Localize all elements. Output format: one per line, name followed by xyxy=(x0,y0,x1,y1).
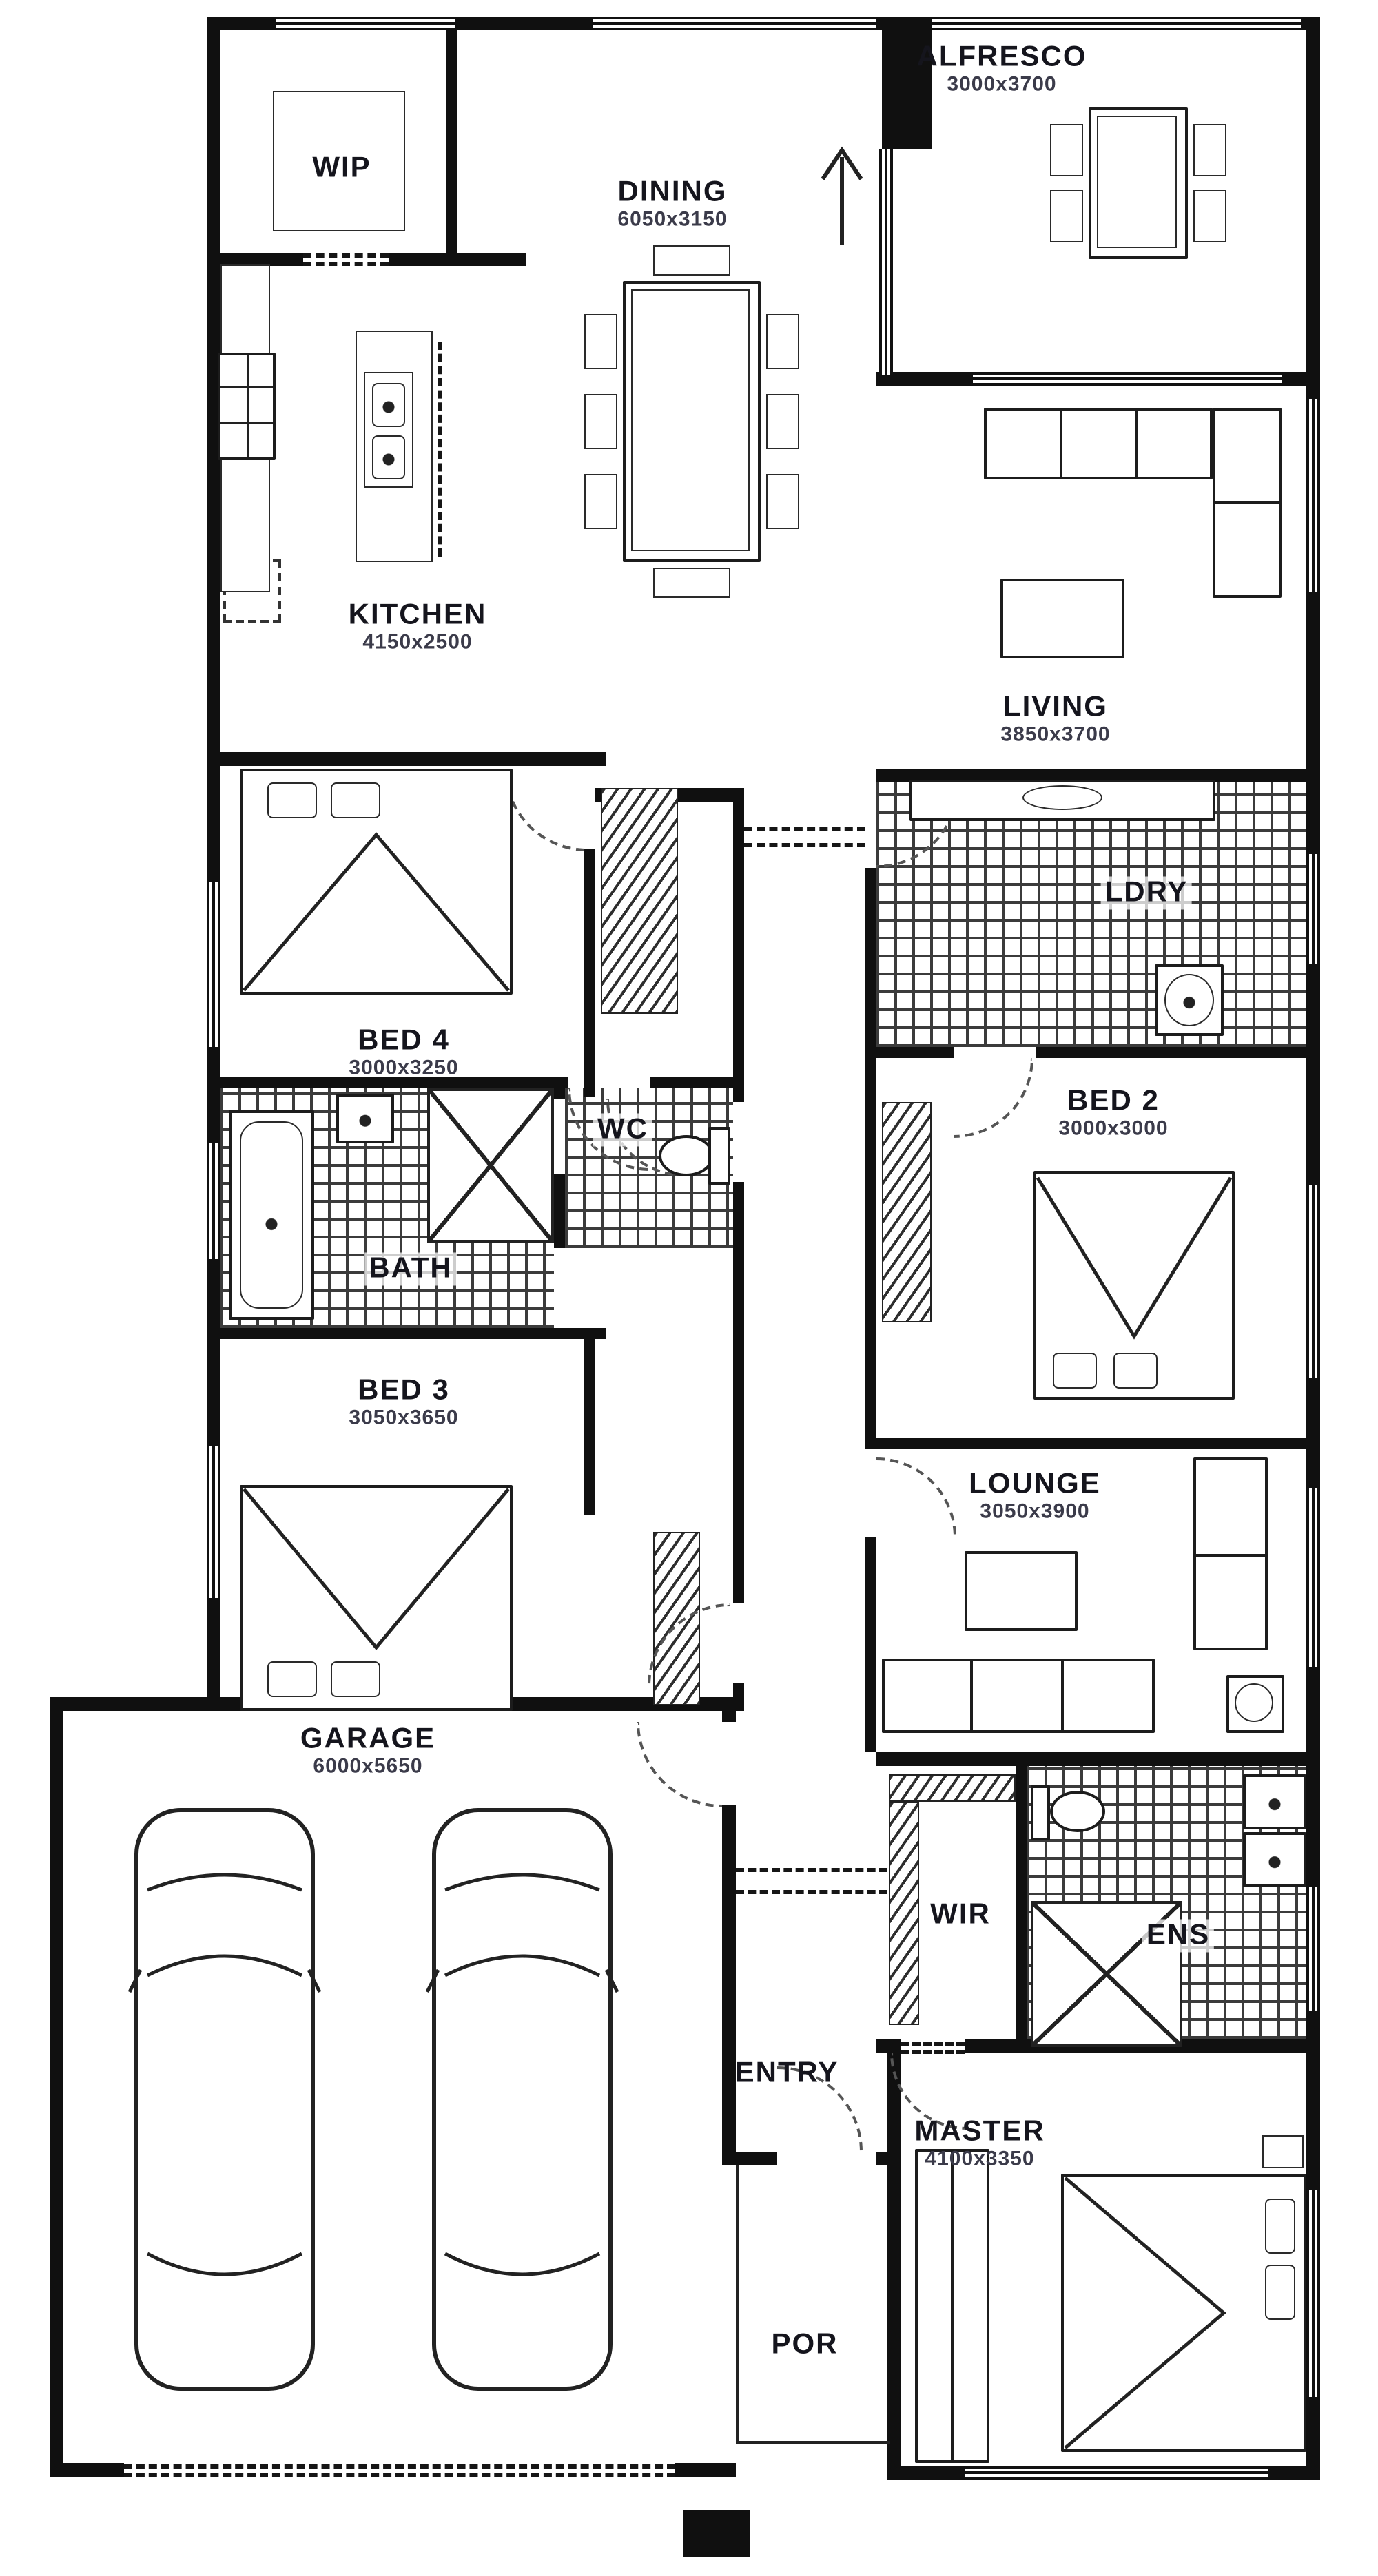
laundry-tub-bowl xyxy=(1164,974,1214,1026)
alfresco-table-inner xyxy=(1097,116,1177,248)
wc-toilet-bowl xyxy=(659,1135,714,1176)
wall-hall-right-c xyxy=(733,1683,744,1711)
living-sofa-top xyxy=(984,408,1213,479)
room-label-bed3: BED 3 3050x3650 xyxy=(349,1375,458,1431)
alfresco-chair-1 xyxy=(1050,124,1083,176)
window-lounge-right xyxy=(1306,1488,1320,1667)
bed3-pillow-2 xyxy=(331,1661,380,1697)
dining-chair-r3 xyxy=(766,474,799,529)
room-label-entry: ENTRY xyxy=(735,2057,839,2089)
wall-ldry-left xyxy=(865,868,876,1047)
lounge-side-table xyxy=(1226,1675,1284,1733)
dining-table xyxy=(623,281,761,562)
wall-master-left xyxy=(887,2050,901,2466)
garage-car-2 xyxy=(424,1799,620,2400)
dining-chair-r1 xyxy=(766,314,799,369)
wall-kitchen-bed4 xyxy=(207,752,606,766)
room-label-lounge: LOUNGE 3050x3900 xyxy=(969,1468,1101,1524)
living-sofa-right xyxy=(1213,408,1282,598)
wall-alfresco-bottom-r xyxy=(1282,372,1320,386)
wall-wir-ens-divider xyxy=(1016,1766,1027,2042)
wall-bathwc-top-r xyxy=(650,1077,744,1088)
ensuite-toilet-bowl xyxy=(1050,1791,1105,1832)
door-bed4 xyxy=(504,769,587,851)
door-lounge xyxy=(876,1457,956,1537)
dining-chair-l3 xyxy=(584,474,617,529)
room-label-bed4: BED 4 3000x3250 xyxy=(349,1025,458,1081)
alfresco-chair-3 xyxy=(1193,124,1226,176)
linen-robe-bed4 xyxy=(601,788,678,1014)
bed3-pillow-1 xyxy=(267,1661,317,1697)
wall-garage-left xyxy=(50,1697,63,2477)
room-label-ldry: LDRY xyxy=(1101,876,1193,908)
window-living-right xyxy=(1306,399,1320,592)
wall-wip-bottom-r xyxy=(389,253,526,266)
wir-rail-top xyxy=(889,1774,1016,1802)
garage-door-dash1 xyxy=(124,2464,675,2469)
bath-vanity xyxy=(336,1094,394,1143)
wall-hall-right-b xyxy=(733,1182,744,1603)
sink-basin-1 xyxy=(372,383,405,427)
bath-tub-inner xyxy=(240,1121,303,1309)
door-garage-entry xyxy=(637,1722,722,1807)
dining-table-inner xyxy=(631,289,750,551)
room-label-master: MASTER 4100x3350 xyxy=(914,2116,1045,2172)
master-pillow-1 xyxy=(1265,2199,1295,2254)
ensuite-vanity-2 xyxy=(1243,1832,1306,1887)
master-bedside-table xyxy=(1262,2135,1304,2168)
wall-bathwc-divider-a xyxy=(554,1088,565,1099)
bath-shower xyxy=(427,1088,554,1243)
sink-basin-2 xyxy=(372,435,405,479)
room-label-bed2: BED 2 3000x3000 xyxy=(1058,1086,1168,1141)
porch-pier xyxy=(683,2510,750,2557)
opening-wip-dash1 xyxy=(303,253,389,258)
opening-entry-dash1 xyxy=(736,1868,887,1872)
window-master-bottom xyxy=(965,2466,1268,2480)
opening-entry-dash2 xyxy=(736,1890,887,1894)
room-label-garage: GARAGE 6000x5650 xyxy=(300,1723,435,1779)
room-label-alfresco: ALFRESCO 3000x3700 xyxy=(917,41,1087,97)
island-overhead-dash xyxy=(438,342,442,557)
wall-entry-bottom-l xyxy=(722,2152,777,2165)
room-label-por: POR xyxy=(771,2328,838,2360)
room-label-bath: BATH xyxy=(364,1252,457,1285)
dining-chair-l1 xyxy=(584,314,617,369)
window-bed2-right xyxy=(1306,1185,1320,1378)
alfresco-chair-4 xyxy=(1193,190,1226,242)
lounge-sofa-bottom xyxy=(882,1659,1155,1733)
alfresco-table xyxy=(1089,107,1188,259)
bed4-pillow-1 xyxy=(267,782,317,818)
bed2-pillow-1 xyxy=(1053,1353,1097,1389)
wall-bed2-bottom xyxy=(865,1438,1320,1449)
lounge-coffee-table xyxy=(965,1551,1078,1631)
wall-lounge-left xyxy=(865,1537,876,1752)
opening-wip-dash2 xyxy=(303,262,389,266)
window-bed3-left xyxy=(207,1446,220,1598)
window-alfresco-left xyxy=(879,149,893,375)
window-alfresco-top xyxy=(932,17,1301,30)
dining-chair-r2 xyxy=(766,394,799,449)
wall-hall-right-a xyxy=(733,788,744,1102)
window-ens-right xyxy=(1306,1887,1320,2011)
window-wip-top xyxy=(276,17,455,30)
wall-bath-bottom xyxy=(207,1328,606,1339)
door-bed2 xyxy=(954,1058,1033,1138)
alfresco-chair-2 xyxy=(1050,190,1083,242)
wall-garage-bottom-l xyxy=(50,2463,124,2477)
wall-ldry-bottom-r xyxy=(1036,1047,1320,1058)
dining-chair-bottom xyxy=(653,568,730,598)
wall-bed2-left xyxy=(865,1058,876,1438)
porch-edge-bottom xyxy=(736,2441,890,2444)
room-label-ens: ENS xyxy=(1142,1919,1214,1951)
garage-door-dash2 xyxy=(124,2473,675,2477)
room-label-wip: WIP xyxy=(312,152,371,184)
opening-hall-dash2 xyxy=(744,843,865,847)
window-bed4-left xyxy=(207,882,220,1047)
porch-edge-left xyxy=(736,2165,739,2444)
robe-bed2 xyxy=(882,1102,932,1322)
wall-entry-left-b xyxy=(722,1805,736,2165)
master-robe xyxy=(915,2149,989,2463)
wir-rail-left xyxy=(889,1802,919,2025)
window-alfresco-slider xyxy=(973,372,1282,386)
garage-car-1 xyxy=(127,1799,322,2400)
ensuite-toilet-tank xyxy=(1031,1785,1050,1840)
window-dining-top xyxy=(593,17,876,30)
lounge-sofa-right xyxy=(1193,1457,1268,1650)
room-label-living: LIVING 3850x3700 xyxy=(1000,692,1110,747)
tv xyxy=(1022,785,1102,810)
wall-garage-bottom-r xyxy=(675,2463,736,2477)
window-bath-left xyxy=(207,1143,220,1259)
wall-bed4-right xyxy=(584,849,595,1097)
dining-chair-top xyxy=(653,245,730,276)
wall-ldry-bottom-l xyxy=(865,1047,954,1058)
floor-plan: ALFRESCO 3000x3700 WIP DINING 6050x3150 … xyxy=(0,0,1378,2576)
wall-wir-ens-top xyxy=(876,1752,1320,1766)
wall-bed3-right xyxy=(584,1339,595,1515)
living-coffee-table xyxy=(1000,579,1124,658)
room-label-dining: DINING 6050x3150 xyxy=(617,176,727,232)
wall-bathwc-divider-b xyxy=(554,1174,565,1248)
cooktop xyxy=(218,353,276,460)
bed2-pillow-2 xyxy=(1113,1353,1158,1389)
window-ldry-door xyxy=(1306,854,1320,964)
bed4-pillow-2 xyxy=(331,782,380,818)
dining-chair-l2 xyxy=(584,394,617,449)
wall-wip-right xyxy=(446,30,457,253)
wc-toilet-tank xyxy=(708,1127,730,1185)
ensuite-vanity-1 xyxy=(1243,1774,1306,1829)
wall-entry-left-a xyxy=(722,1711,736,1722)
master-pillow-2 xyxy=(1265,2265,1295,2320)
room-label-kitchen: KITCHEN 4150x2500 xyxy=(349,599,487,655)
opening-hall-dash1 xyxy=(744,827,865,831)
opening-master-dash1 xyxy=(901,2042,965,2046)
north-arrow-icon xyxy=(819,143,865,248)
room-label-wir: WIR xyxy=(930,1898,991,1931)
room-label-wc: WC xyxy=(593,1113,652,1145)
window-master-right xyxy=(1306,2190,1320,2397)
